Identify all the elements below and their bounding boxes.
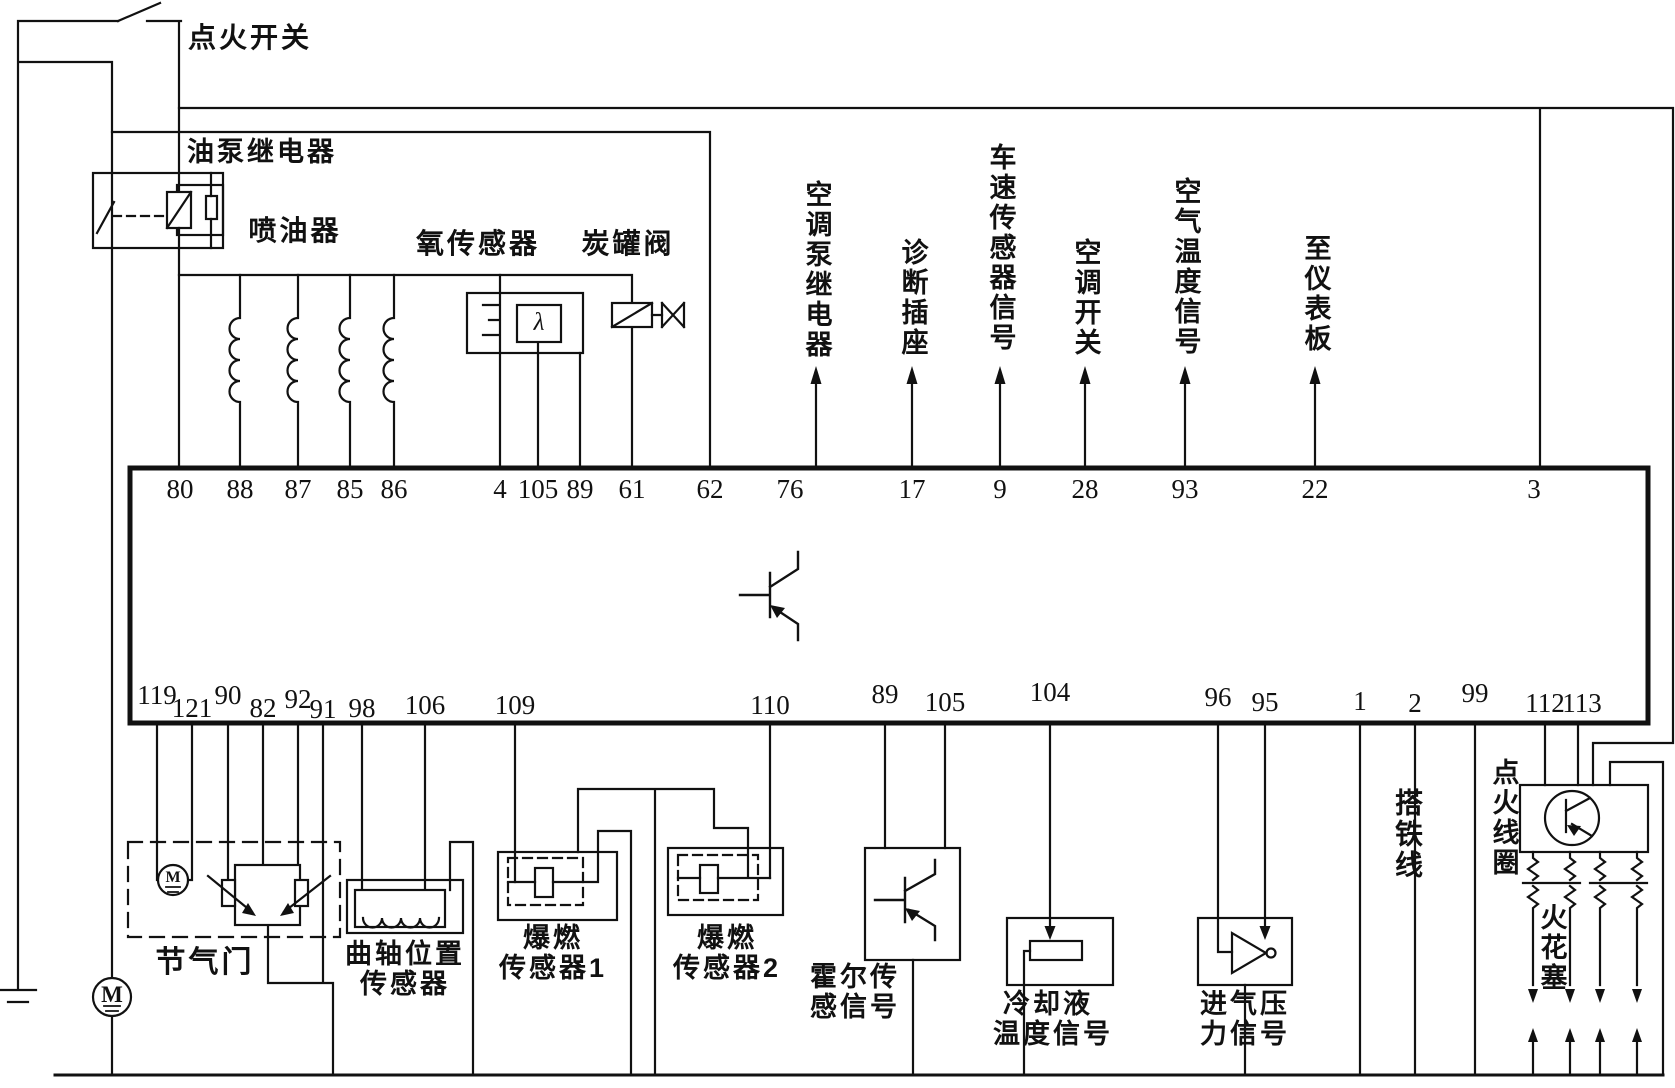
hall-transistor: [875, 860, 935, 940]
pin-bottom-92: 92: [285, 686, 312, 713]
ecu-transistor-arrow: [770, 605, 785, 618]
to-instrument-panel-label: 至仪表板: [1302, 234, 1329, 354]
canister-valve-label: 炭罐阀: [581, 230, 674, 258]
relay-resistor: [206, 196, 217, 219]
ac-pump-relay-label: 空调泵继电器: [803, 180, 830, 360]
hall-label-2: 感信号: [810, 994, 900, 1021]
ground-wire-label: 搭铁线: [1393, 788, 1421, 881]
injectors-label: 喷油器: [248, 217, 341, 245]
throttle-motor-letter: M: [165, 870, 180, 886]
pin-bottom-98: 98: [349, 695, 376, 722]
pin-bottom-104: 104: [1030, 679, 1071, 706]
pressure-label-2: 力信号: [1200, 1021, 1290, 1048]
pin-bottom-1: 1: [1353, 688, 1367, 715]
crank-sensor-label-2: 传感器: [360, 971, 450, 998]
knock1-label-2: 传感器1: [499, 955, 607, 982]
oxygen-sensor-wires: [483, 275, 580, 466]
throttle-label: 节气门: [156, 948, 255, 978]
pin-top-88: 88: [227, 476, 254, 503]
oxygen-sensor-label: 氧传感器: [416, 230, 540, 258]
wiring-diagram: 点火开关 油泵继电器 喷油器 氧传感器 炭罐阀 λ 空调泵继电器 诊断插座 车速…: [0, 0, 1675, 1088]
signal-arrow-heads: [811, 366, 1321, 384]
battery-and-left-rail: [0, 21, 181, 1075]
pin-bottom-82: 82: [250, 695, 277, 722]
knock1-label-1: 爆燃: [523, 925, 583, 952]
pressure-box: [1198, 918, 1292, 985]
pin-top-80: 80: [167, 476, 194, 503]
pin-top-9: 9: [993, 476, 1007, 503]
vehicle-speed-signal-label: 车速传感器信号: [987, 143, 1014, 353]
ac-switch-label: 空调开关: [1072, 238, 1099, 358]
pin-top-4: 4: [493, 476, 507, 503]
air-temp-signal-label: 空气温度信号: [1172, 177, 1199, 357]
pin-top-61: 61: [619, 476, 646, 503]
knock2-label-2: 传感器2: [673, 955, 781, 982]
ignition-switch-blade: [97, 3, 160, 233]
pin-top-86: 86: [381, 476, 408, 503]
pin-bottom-109: 109: [495, 692, 536, 719]
injector-rail: [179, 275, 632, 466]
fuel-pump-motor-letter: M: [101, 983, 123, 1006]
pin-bottom-95: 95: [1252, 689, 1279, 716]
ignition-coil-circle: [1545, 791, 1599, 845]
signal-arrow-lines: [816, 382, 1315, 466]
pin-top-85: 85: [337, 476, 364, 503]
ignition-coil-label: 点火线圈: [1490, 758, 1517, 878]
fuel-pump-relay-label: 油泵继电器: [187, 139, 337, 166]
ignition-switch-label: 点火开关: [188, 24, 312, 52]
lambda-symbol: λ: [534, 310, 545, 335]
pin-bottom-112: 112: [1525, 690, 1565, 717]
pin-bottom-110: 110: [750, 692, 790, 719]
pin-bottom-96: 96: [1205, 684, 1232, 711]
pin-top-22: 22: [1302, 476, 1329, 503]
hall-label-1: 霍尔传: [810, 964, 900, 991]
pin-bottom-2: 2: [1408, 690, 1422, 717]
knock1-piezo: [535, 868, 553, 897]
pressure-label-1: 进气压: [1200, 991, 1290, 1018]
ecu-transistor: [740, 552, 798, 640]
injector-coil-3: [340, 275, 351, 466]
coolant-label-1: 冷却液: [1003, 991, 1093, 1018]
pin-top-105: 105: [518, 476, 559, 503]
injector-coil-2: [288, 275, 299, 466]
pin-top-62: 62: [697, 476, 724, 503]
throttle-pot: [235, 865, 300, 925]
diagnostic-socket-label: 诊断插座: [899, 238, 926, 358]
pin-top-87: 87: [285, 476, 312, 503]
pin-top-76: 76: [777, 476, 804, 503]
knock2-box: [668, 848, 783, 915]
pin-bottom-106: 106: [405, 692, 446, 719]
pin-top-93: 93: [1172, 476, 1199, 503]
pin-bottom-121: 121: [172, 695, 213, 722]
coolant-resistor: [1030, 941, 1082, 960]
knock2-label-1: 爆燃: [697, 925, 757, 952]
pin-bottom-105: 105: [925, 689, 966, 716]
spark-plug-label: 火花塞: [1538, 903, 1565, 993]
relay-feed-line: [112, 132, 710, 466]
pin-bottom-89: 89: [872, 681, 899, 708]
pin-top-89: 89: [567, 476, 594, 503]
pin-bottom-91: 91: [310, 696, 337, 723]
sensor-arrow-heads: [1045, 926, 1271, 940]
spark-gap-arrow-heads: [1528, 989, 1642, 1042]
pin-top-17: 17: [899, 476, 926, 503]
injector-coil-4: [384, 275, 394, 466]
crank-sensor-label-1: 曲轴位置: [345, 941, 465, 968]
pin-top-3: 3: [1527, 476, 1541, 503]
coolant-label-2: 温度信号: [993, 1021, 1113, 1048]
pin-bottom-99: 99: [1462, 680, 1489, 707]
pin-bottom-90: 90: [215, 682, 242, 709]
knock2-piezo: [700, 865, 718, 893]
pin-bottom-113: 113: [1562, 690, 1602, 717]
hall-box: [865, 848, 960, 960]
canister-valve-symbol: [662, 303, 684, 327]
injector-coil-1: [230, 275, 241, 466]
pin-top-28: 28: [1072, 476, 1099, 503]
